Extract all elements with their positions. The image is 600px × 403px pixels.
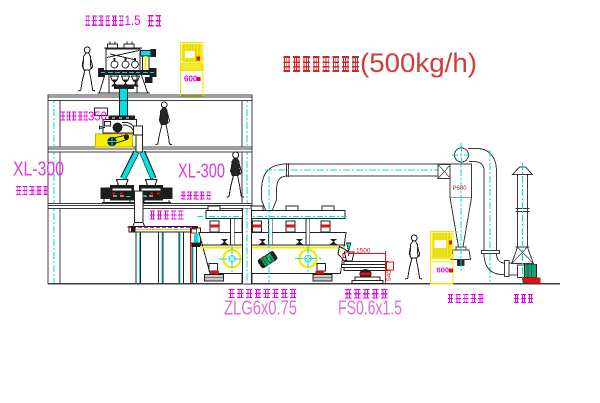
svg-text:XL-300: XL-300 [13,159,64,181]
svg-text:FS0.6x1.5: FS0.6x1.5 [338,297,402,320]
svg-text:350: 350 [88,109,107,124]
svg-text:XL-300: XL-300 [178,161,225,183]
svg-text:600: 600 [184,75,198,84]
svg-text:ZLG6x0.75: ZLG6x0.75 [224,297,297,320]
svg-text:600: 600 [437,266,450,275]
svg-text:1.5: 1.5 [125,13,141,28]
svg-text:1500: 1500 [356,248,371,255]
svg-text:540: 540 [386,270,393,281]
svg-text:(500kg/h): (500kg/h) [360,48,477,78]
svg-text:P600: P600 [453,186,468,192]
